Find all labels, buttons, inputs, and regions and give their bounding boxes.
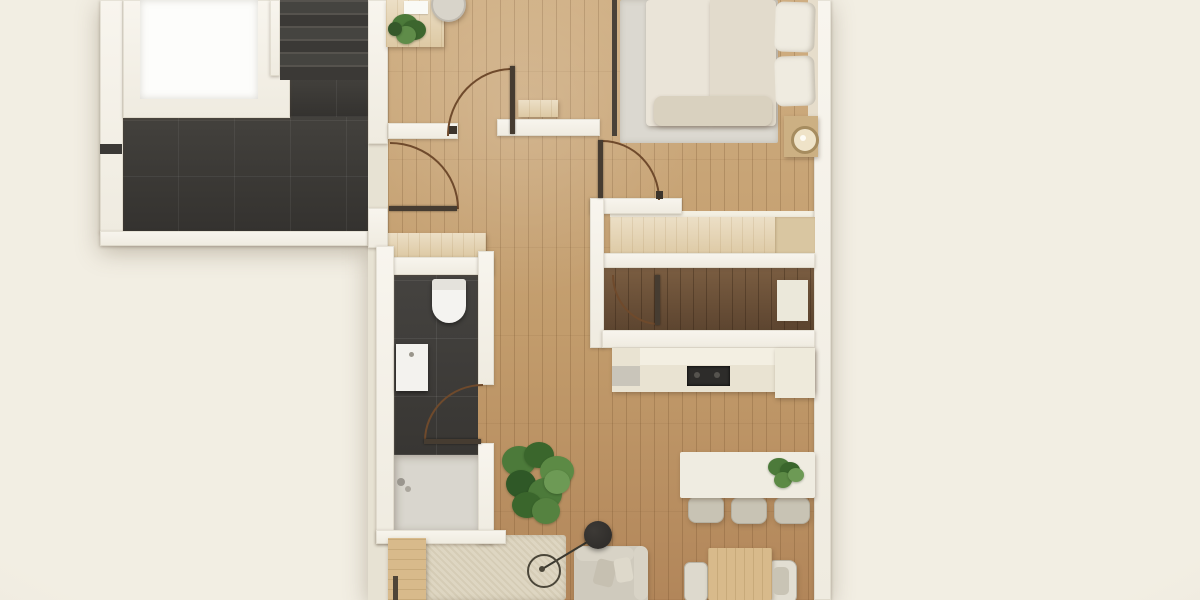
cooktop-burner [694,372,700,378]
landing-floor-upper [280,76,368,117]
bed-pillow-top [774,1,816,52]
floor-lamp-shade [584,521,612,549]
landing-left-wall [100,0,123,233]
mid-west-wall [590,198,604,348]
dining-chair [774,497,810,524]
entry-door-leaf [389,206,457,211]
bathroom-top-shelf [386,233,486,257]
bathroom-west-wall [376,246,394,544]
dressing-door-leaf [655,275,660,325]
bathroom-east-wall-upper [478,251,494,385]
shower-fixture [405,486,411,492]
table-lamp-bulb [800,135,806,141]
west-wall-upper [368,0,388,144]
hall-door-jamb [449,126,457,134]
desk-cabinet [777,280,808,321]
sofa-armrest [634,546,648,600]
bathroom-east-wall-lower [478,443,494,544]
console-paper [404,1,428,14]
landing-bottom-wall [100,231,368,246]
wall-shelf [518,100,558,117]
sink-vanity [396,344,428,391]
bedroom-door-jamb [656,191,663,199]
floor-plan [0,0,1200,600]
bed-fold [654,96,772,126]
bathtub-shower [394,455,478,530]
west-wall-mid [368,208,388,248]
wardrobe-right-section [775,217,815,256]
bedroom-door-leaf [598,140,603,198]
bedroom-partition-edge [612,0,617,136]
stairwell-void [140,0,258,99]
shower-fixture [397,478,405,486]
kitchen-tall-cabinet [775,348,815,398]
toilet-cistern [432,279,466,290]
bed-pillow-bottom [774,55,816,106]
armchair-left [684,562,708,600]
dressing-north-wall [602,253,815,268]
bathroom-door-leaf [424,439,481,444]
landing-wall-notch [100,144,122,154]
dining-chair [688,496,724,523]
sideboard-handle [393,576,398,600]
hall-door-leaf [510,66,515,134]
kitchen-north-wall [602,330,815,348]
cooktop-burner [714,372,720,378]
staircase [280,0,368,78]
kitchen-upper-cabinets [640,348,775,365]
armchair-right-seat [773,567,789,595]
wood-side-table [708,548,772,600]
stairs-left-wall [270,0,280,76]
kitchen-sink-section [612,366,640,386]
stair-step [280,65,368,80]
floor-lamp-base-plate [539,566,545,572]
landing-floor [122,117,368,233]
dining-chair [731,497,767,524]
sink-faucet [409,352,414,357]
